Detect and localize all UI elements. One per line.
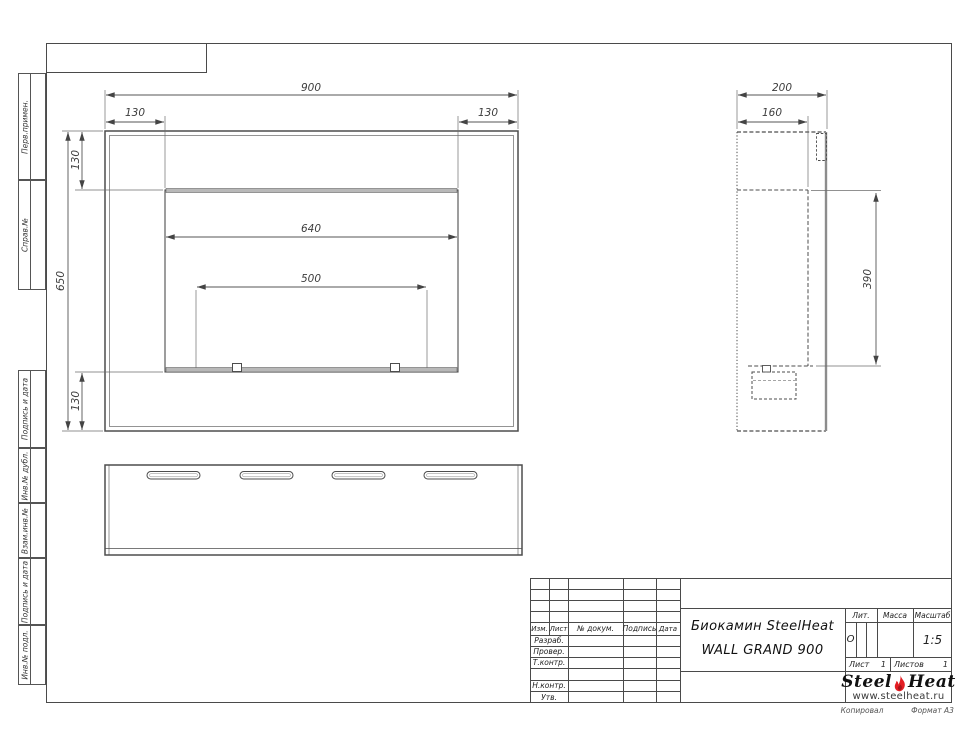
tb-col-list: Лист (549, 622, 568, 635)
tb-sheets-value: 1 (943, 660, 948, 669)
tb-row-utv: Утв. (530, 691, 568, 703)
tb-lit-label: Лит. (845, 608, 877, 622)
margin-label: Справ.№ (19, 181, 30, 289)
margin-cell-perv-primen: Перв.примен. (18, 73, 46, 180)
tb-sheet-cell: Лист 1 (845, 657, 890, 671)
tb-row-prover: Провер. (530, 646, 568, 657)
margin-cell-inv-dubl: Инв.№ дубл. (18, 448, 46, 503)
tb-massa-label: Масса (877, 608, 913, 622)
margin-label: Подпись и дата (19, 371, 30, 447)
margin-label: Инв.№ дубл. (19, 449, 30, 502)
tb-col-sign: Подпись (623, 622, 656, 635)
logo-text-steel: Steel (841, 672, 892, 692)
margin-label: Инв.№ подл. (19, 626, 30, 684)
margin-cell-podpis-data-1: Подпись и дата (18, 370, 46, 448)
flame-icon (894, 675, 907, 692)
margin-label: Перв.примен. (19, 74, 30, 179)
tb-sheet-value: 1 (881, 660, 886, 669)
logo-website: www.steelheat.ru (853, 691, 945, 702)
tb-row-nkontr: Н.контр. (530, 680, 568, 691)
document-title-line2: WALL GRAND 900 (680, 638, 845, 662)
tb-row-tkontr: Т.контр. (530, 657, 568, 668)
margin-cell-vzam-inv: Взам.инв.№ (18, 503, 46, 558)
tb-sheets-cell: Листов 1 (890, 657, 952, 671)
drawing-frame (46, 43, 952, 703)
tb-scale-value: 1:5 (913, 622, 952, 657)
document-title-line1: Биокамин SteelHeat (680, 614, 845, 638)
steelheat-logo: Steel Heat www.steelheat.ru (845, 671, 952, 703)
tb-scale-label: Масштаб (913, 608, 952, 622)
margin-cell-podpis-data-2: Подпись и дата (18, 558, 46, 625)
margin-cell-inv-podl: Инв.№ подл. (18, 625, 46, 685)
tb-lit-value: О (845, 622, 856, 657)
tb-col-date: Дата (656, 622, 680, 635)
tb-sheets-label: Листов (894, 660, 924, 669)
copied-note: Копировал (830, 706, 894, 715)
margin-cell-sprav-no: Справ.№ (18, 180, 46, 290)
tb-row-razrab: Разраб. (530, 635, 568, 646)
tb-sheet-label: Лист (849, 660, 869, 669)
corner-reference-block (46, 43, 207, 73)
margin-label: Подпись и дата (19, 559, 30, 624)
tb-col-izm: Изм. (530, 622, 549, 635)
drawing-sheet: 900 130 130 640 500 650 130 130 (0, 0, 970, 749)
margin-label: Взам.инв.№ (19, 504, 30, 557)
format-note: Формат А3 (905, 706, 960, 715)
logo-text-heat: Heat (908, 672, 956, 692)
tb-col-doc: № докум. (568, 622, 623, 635)
